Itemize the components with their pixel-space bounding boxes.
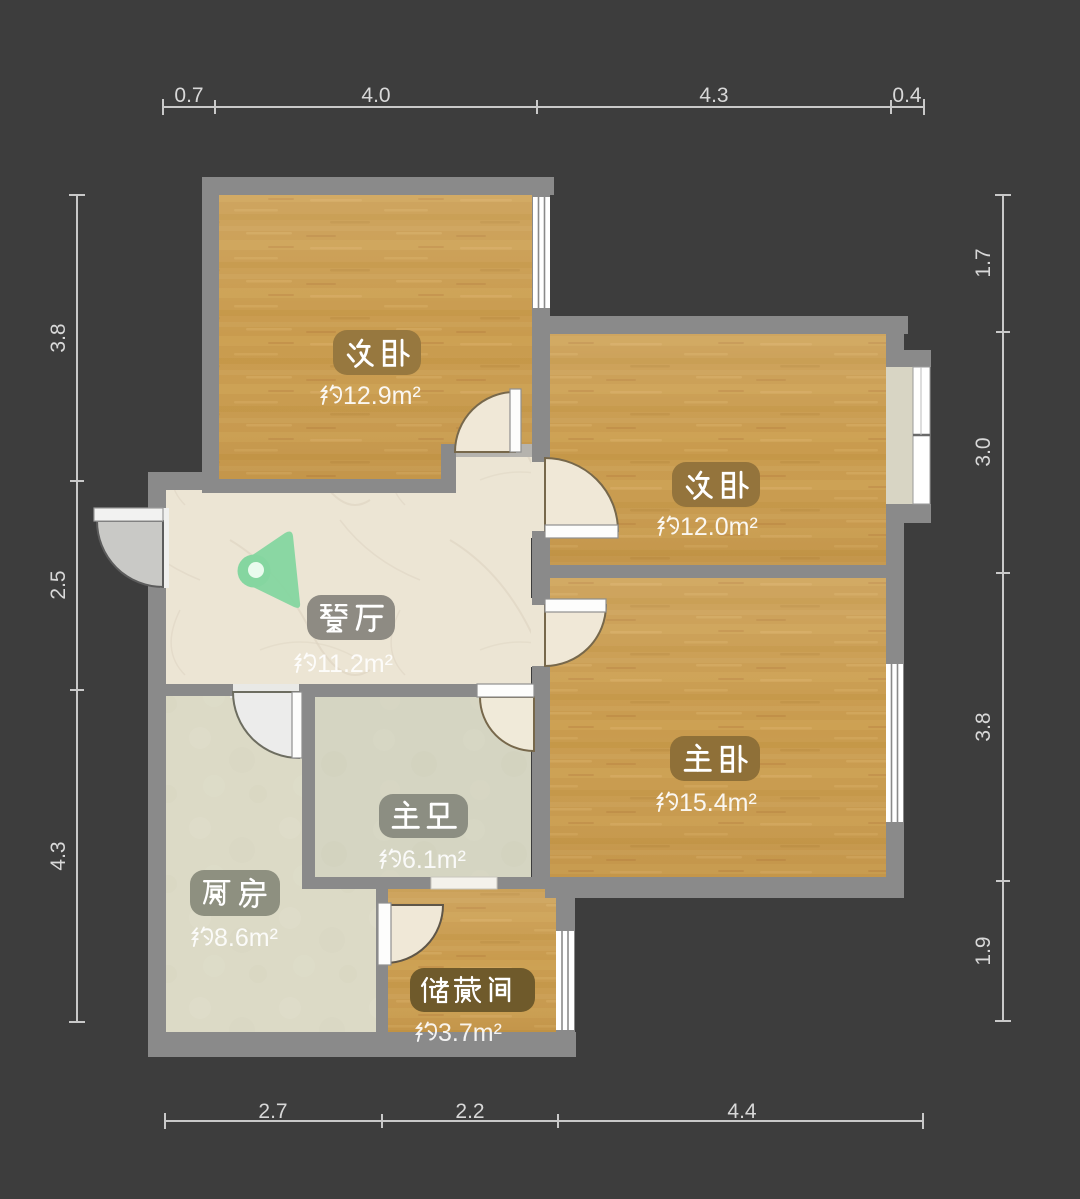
svg-text:4.4: 4.4 xyxy=(727,1100,757,1123)
svg-text:8.6m²: 8.6m² xyxy=(214,924,278,952)
svg-text:2.2: 2.2 xyxy=(455,1100,484,1123)
svg-text:3.7m²: 3.7m² xyxy=(438,1019,502,1047)
svg-text:12.9m²: 12.9m² xyxy=(343,382,421,410)
svg-text:1.9: 1.9 xyxy=(972,936,995,965)
svg-text:3.8: 3.8 xyxy=(47,323,70,352)
svg-text:2.7: 2.7 xyxy=(258,1100,287,1123)
svg-text:12.0m²: 12.0m² xyxy=(680,513,758,541)
svg-text:4.3: 4.3 xyxy=(699,84,728,107)
svg-text:4.0: 4.0 xyxy=(361,84,390,107)
svg-text:2.5: 2.5 xyxy=(47,570,70,599)
svg-text:0.7: 0.7 xyxy=(174,84,203,107)
svg-text:11.2m²: 11.2m² xyxy=(317,650,393,678)
svg-text:15.4m²: 15.4m² xyxy=(679,789,757,817)
svg-text:6.1m²: 6.1m² xyxy=(402,846,466,874)
svg-text:0.4: 0.4 xyxy=(892,84,922,107)
svg-text:1.7: 1.7 xyxy=(972,248,995,277)
svg-text:3.0: 3.0 xyxy=(972,437,995,466)
svg-text:4.3: 4.3 xyxy=(47,841,70,870)
svg-text:3.8: 3.8 xyxy=(972,712,995,741)
